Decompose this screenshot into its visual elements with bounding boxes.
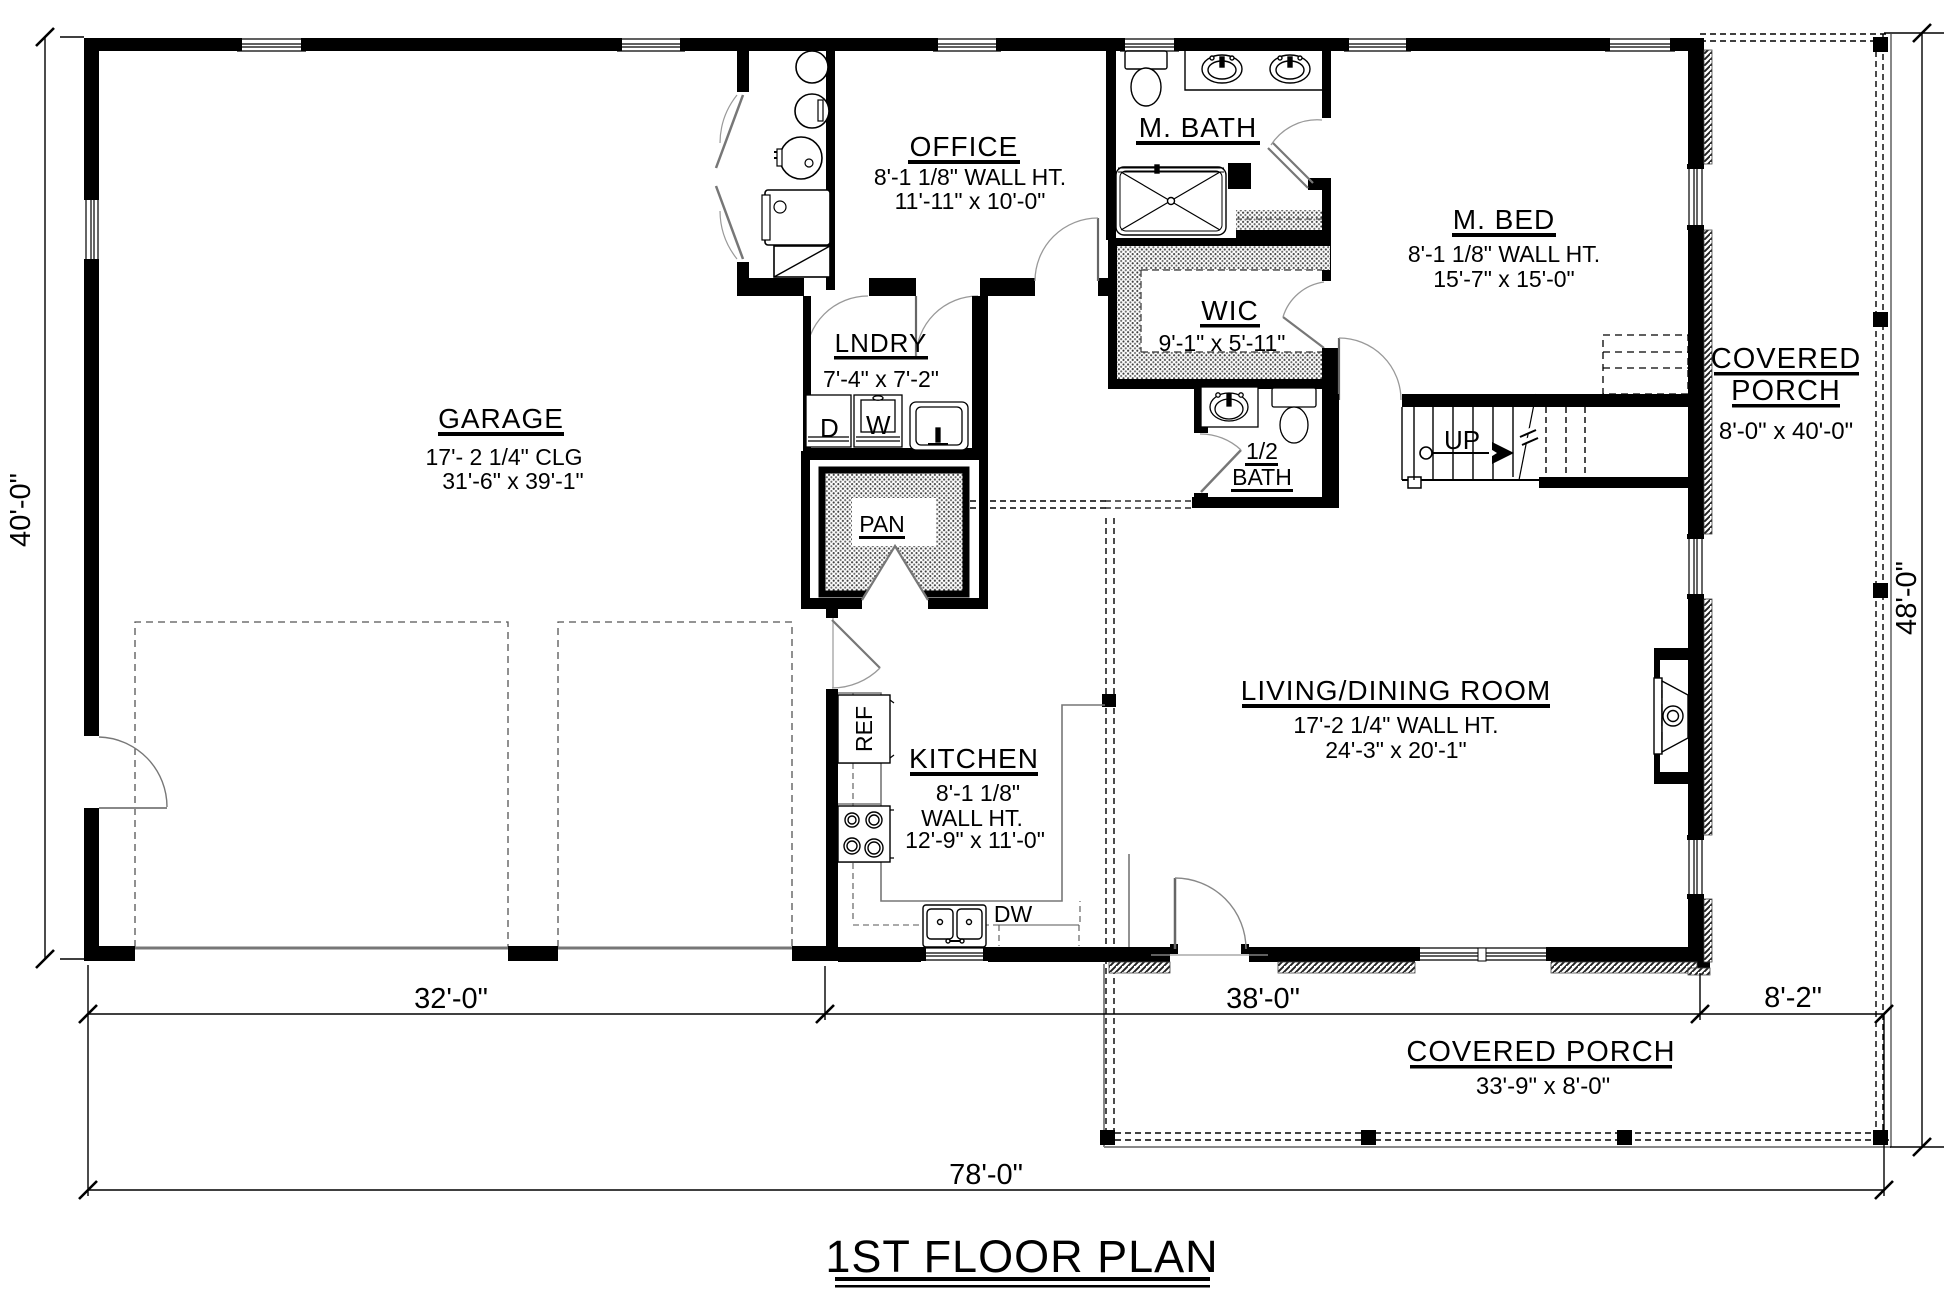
svg-text:WIC: WIC (1201, 295, 1258, 326)
svg-text:M. BATH: M. BATH (1139, 112, 1257, 143)
svg-text:40'-0": 40'-0" (5, 473, 37, 547)
svg-text:BATH: BATH (1232, 464, 1292, 490)
svg-text:8'-1 1/8" WALL HT.: 8'-1 1/8" WALL HT. (874, 164, 1066, 190)
svg-text:11'-11" x 10'-0": 11'-11" x 10'-0" (895, 188, 1046, 214)
svg-text:24'-3" x 20'-1": 24'-3" x 20'-1" (1325, 737, 1466, 763)
svg-text:COVERED PORCH: COVERED PORCH (1406, 1036, 1675, 1068)
svg-text:31'-6" x 39'-1": 31'-6" x 39'-1" (442, 468, 583, 494)
svg-text:LIVING/DINING ROOM: LIVING/DINING ROOM (1241, 675, 1551, 706)
svg-text:8'-1 1/8" WALL HT.: 8'-1 1/8" WALL HT. (1408, 241, 1600, 267)
svg-text:15'-7" x 15'-0": 15'-7" x 15'-0" (1433, 266, 1574, 292)
svg-text:8'-2": 8'-2" (1764, 982, 1822, 1014)
svg-text:12'-9" x 11'-0": 12'-9" x 11'-0" (905, 827, 1045, 853)
svg-text:1ST FLOOR PLAN: 1ST FLOOR PLAN (825, 1231, 1218, 1282)
svg-text:32'-0": 32'-0" (414, 983, 488, 1015)
svg-text:DW: DW (994, 901, 1033, 927)
svg-text:PAN: PAN (859, 511, 905, 537)
svg-text:COVERED: COVERED (1711, 343, 1861, 375)
svg-text:8'-1 1/8": 8'-1 1/8" (936, 780, 1020, 806)
svg-text:17'- 2 1/4" CLG: 17'- 2 1/4" CLG (425, 444, 582, 470)
svg-text:38'-0": 38'-0" (1226, 983, 1300, 1015)
svg-text:7'-4" x 7'-2": 7'-4" x 7'-2" (823, 366, 939, 392)
svg-text:PORCH: PORCH (1731, 375, 1841, 407)
svg-text:78'-0": 78'-0" (949, 1159, 1023, 1191)
svg-text:OFFICE: OFFICE (910, 131, 1019, 162)
svg-text:M. BED: M. BED (1453, 204, 1555, 235)
svg-text:REF: REF (851, 706, 877, 752)
svg-text:KITCHEN: KITCHEN (909, 743, 1039, 774)
svg-text:D: D (820, 413, 839, 443)
svg-text:1/2: 1/2 (1246, 438, 1278, 464)
svg-text:W: W (866, 410, 891, 440)
svg-text:8'-0" x 40'-0": 8'-0" x 40'-0" (1719, 418, 1853, 445)
svg-text:17'-2 1/4" WALL HT.: 17'-2 1/4" WALL HT. (1293, 712, 1498, 738)
svg-text:48'-0": 48'-0" (1891, 561, 1923, 635)
svg-text:LNDRY: LNDRY (835, 328, 928, 358)
svg-text:9'-1" x 5'-11": 9'-1" x 5'-11" (1159, 330, 1286, 356)
svg-text:33'-9" x 8'-0": 33'-9" x 8'-0" (1476, 1073, 1610, 1100)
svg-text:UP: UP (1444, 425, 1480, 455)
svg-text:GARAGE: GARAGE (438, 403, 564, 434)
